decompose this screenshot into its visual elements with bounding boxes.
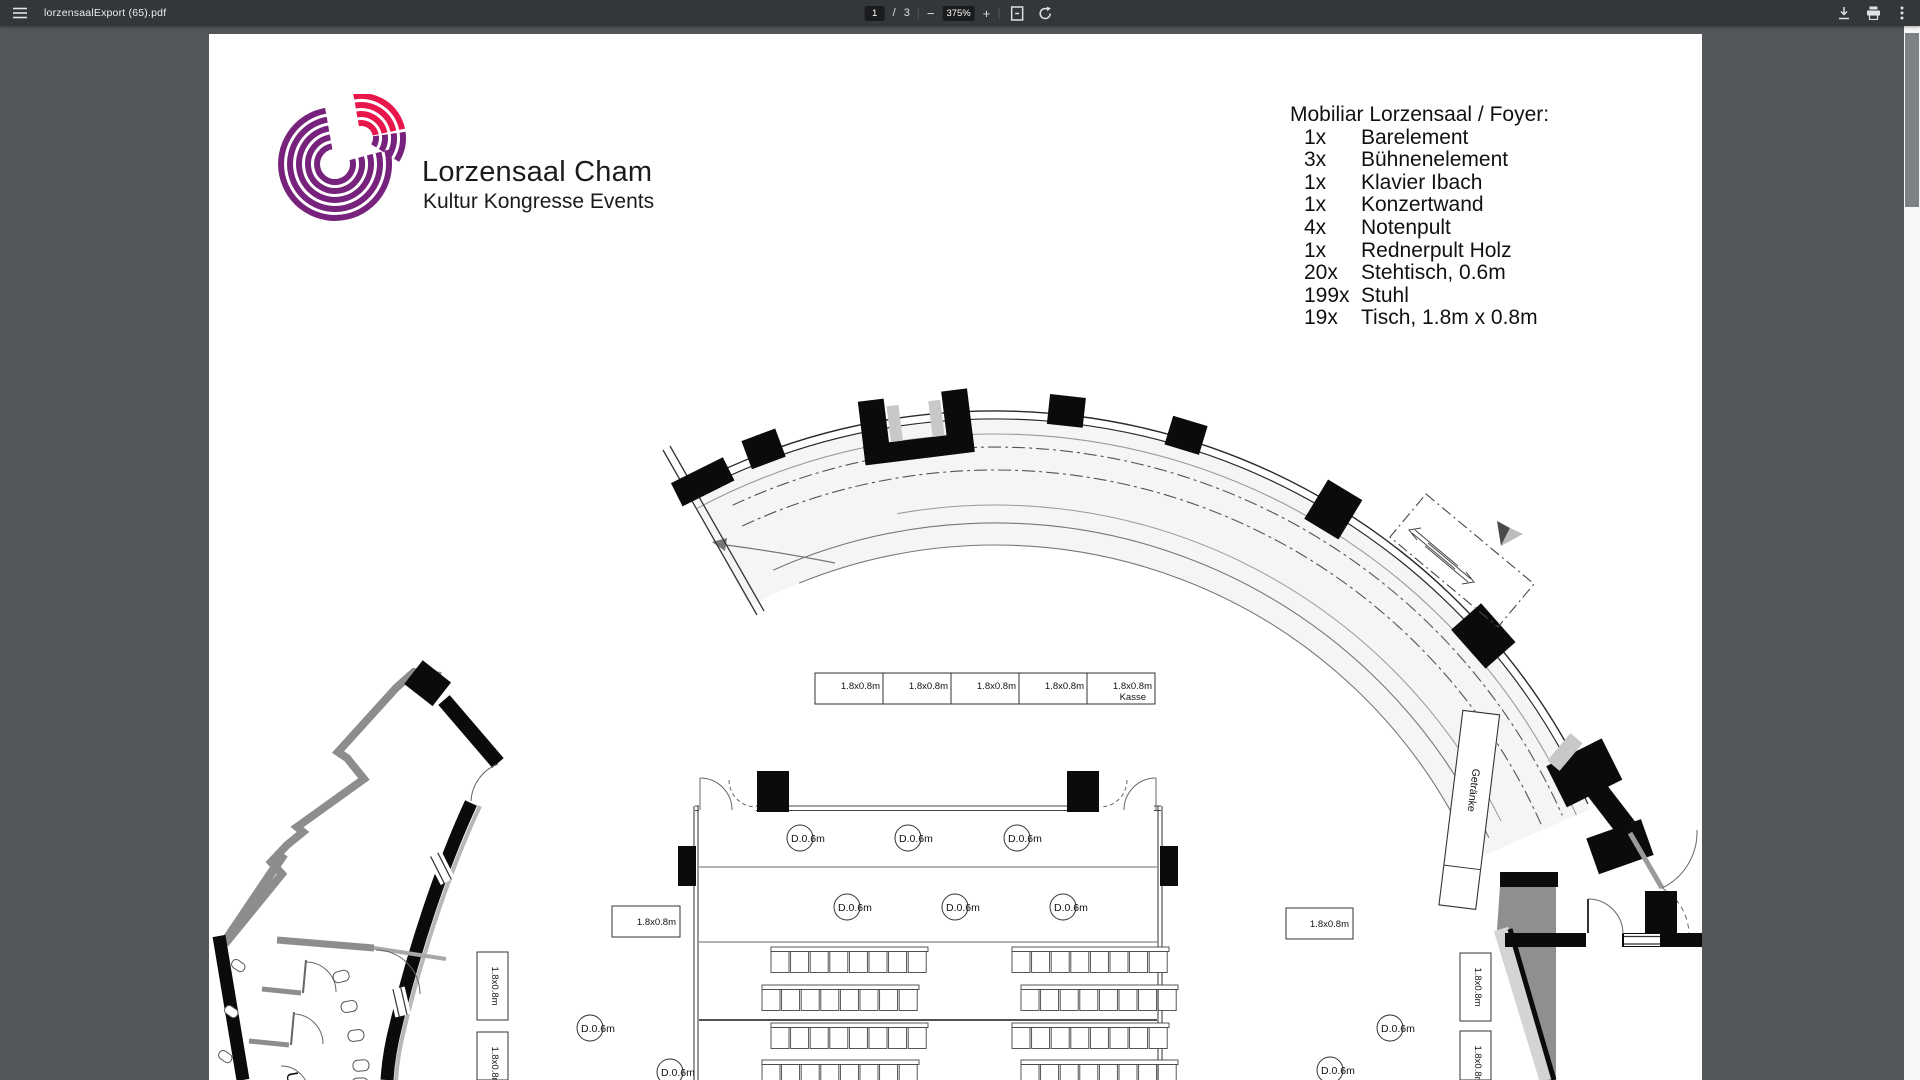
- stehtisch-label: D.0.6m: [1054, 902, 1088, 914]
- stehtisch-label: D.0.6m: [1008, 833, 1042, 845]
- table-size-label: 1.8x0.8m: [489, 1046, 500, 1080]
- wc-u-label: U: [282, 1070, 303, 1080]
- pdf-page: Lorzensaal Cham Kultur Kongresse Events …: [209, 34, 1702, 1080]
- stehtisch-label: D.0.6m: [946, 902, 980, 914]
- more-options-icon[interactable]: [1892, 3, 1912, 23]
- zoom-level-input[interactable]: 375%: [942, 6, 974, 21]
- toolbar-separator: [998, 8, 999, 19]
- table-size-label: 1.8x0.8m: [1113, 681, 1152, 692]
- table-size-label: 1.8x0.8m: [977, 681, 1016, 692]
- page-total: 3: [904, 7, 910, 19]
- print-icon[interactable]: [1863, 3, 1883, 23]
- floor-plan: 1.8x0.8m1.8x0.8m1.8x0.8m1.8x0.8m1.8x0.8m…: [209, 34, 1702, 1080]
- stehtisch-label: D.0.6m: [1381, 1023, 1415, 1035]
- table-size-label: 1.8x0.8m: [489, 966, 500, 1005]
- hall-pillars: [678, 771, 1178, 886]
- table-size-label: 1.8x0.8m: [1045, 681, 1084, 692]
- stehtisch-markers: D.0.6mD.0.6mD.0.6mD.0.6mD.0.6mD.0.6mD.0.…: [577, 825, 1415, 1080]
- left-wing: [219, 660, 498, 1080]
- table-size-label: 1.8x0.8m: [637, 917, 676, 928]
- fit-page-icon[interactable]: [1007, 3, 1027, 23]
- pdf-toolbar: lorzensaalExport (65).pdf 1 / 3 − 375% +: [0, 0, 1920, 26]
- table-size-label: 1.8x0.8m: [841, 681, 880, 692]
- document-filename: lorzensaalExport (65).pdf: [44, 7, 166, 19]
- stehtisch-label: D.0.6m: [838, 902, 872, 914]
- table-size-label: 1.8x0.8m: [909, 681, 948, 692]
- table-size-label: 1.8x0.8m: [1472, 967, 1483, 1006]
- stehtisch-label: D.0.6m: [791, 833, 825, 845]
- toolbar-separator: [918, 8, 919, 19]
- menu-icon[interactable]: [10, 3, 30, 23]
- kasse-label: Kasse: [1120, 692, 1146, 703]
- rotate-icon[interactable]: [1035, 3, 1055, 23]
- zoom-out-button[interactable]: −: [927, 7, 935, 20]
- vertical-scrollbar[interactable]: [1904, 26, 1920, 1080]
- orientation-pointer: [1497, 521, 1523, 546]
- stehtisch-label: D.0.6m: [581, 1023, 615, 1035]
- table-size-label: 1.8x0.8m: [1472, 1045, 1483, 1080]
- wall-pillar: [1047, 394, 1086, 428]
- page-divider: /: [893, 7, 896, 19]
- stehtisch-label: D.0.6m: [1321, 1065, 1355, 1077]
- chair-rows: [762, 947, 1178, 1080]
- table-size-label: 1.8x0.8m: [1310, 919, 1349, 930]
- zoom-in-button[interactable]: +: [983, 7, 991, 20]
- page-number-input[interactable]: 1: [865, 6, 885, 21]
- scrollbar-thumb[interactable]: [1905, 33, 1919, 207]
- stehtisch-label: D.0.6m: [661, 1067, 695, 1079]
- stehtisch-label: D.0.6m: [899, 833, 933, 845]
- download-icon[interactable]: [1834, 3, 1854, 23]
